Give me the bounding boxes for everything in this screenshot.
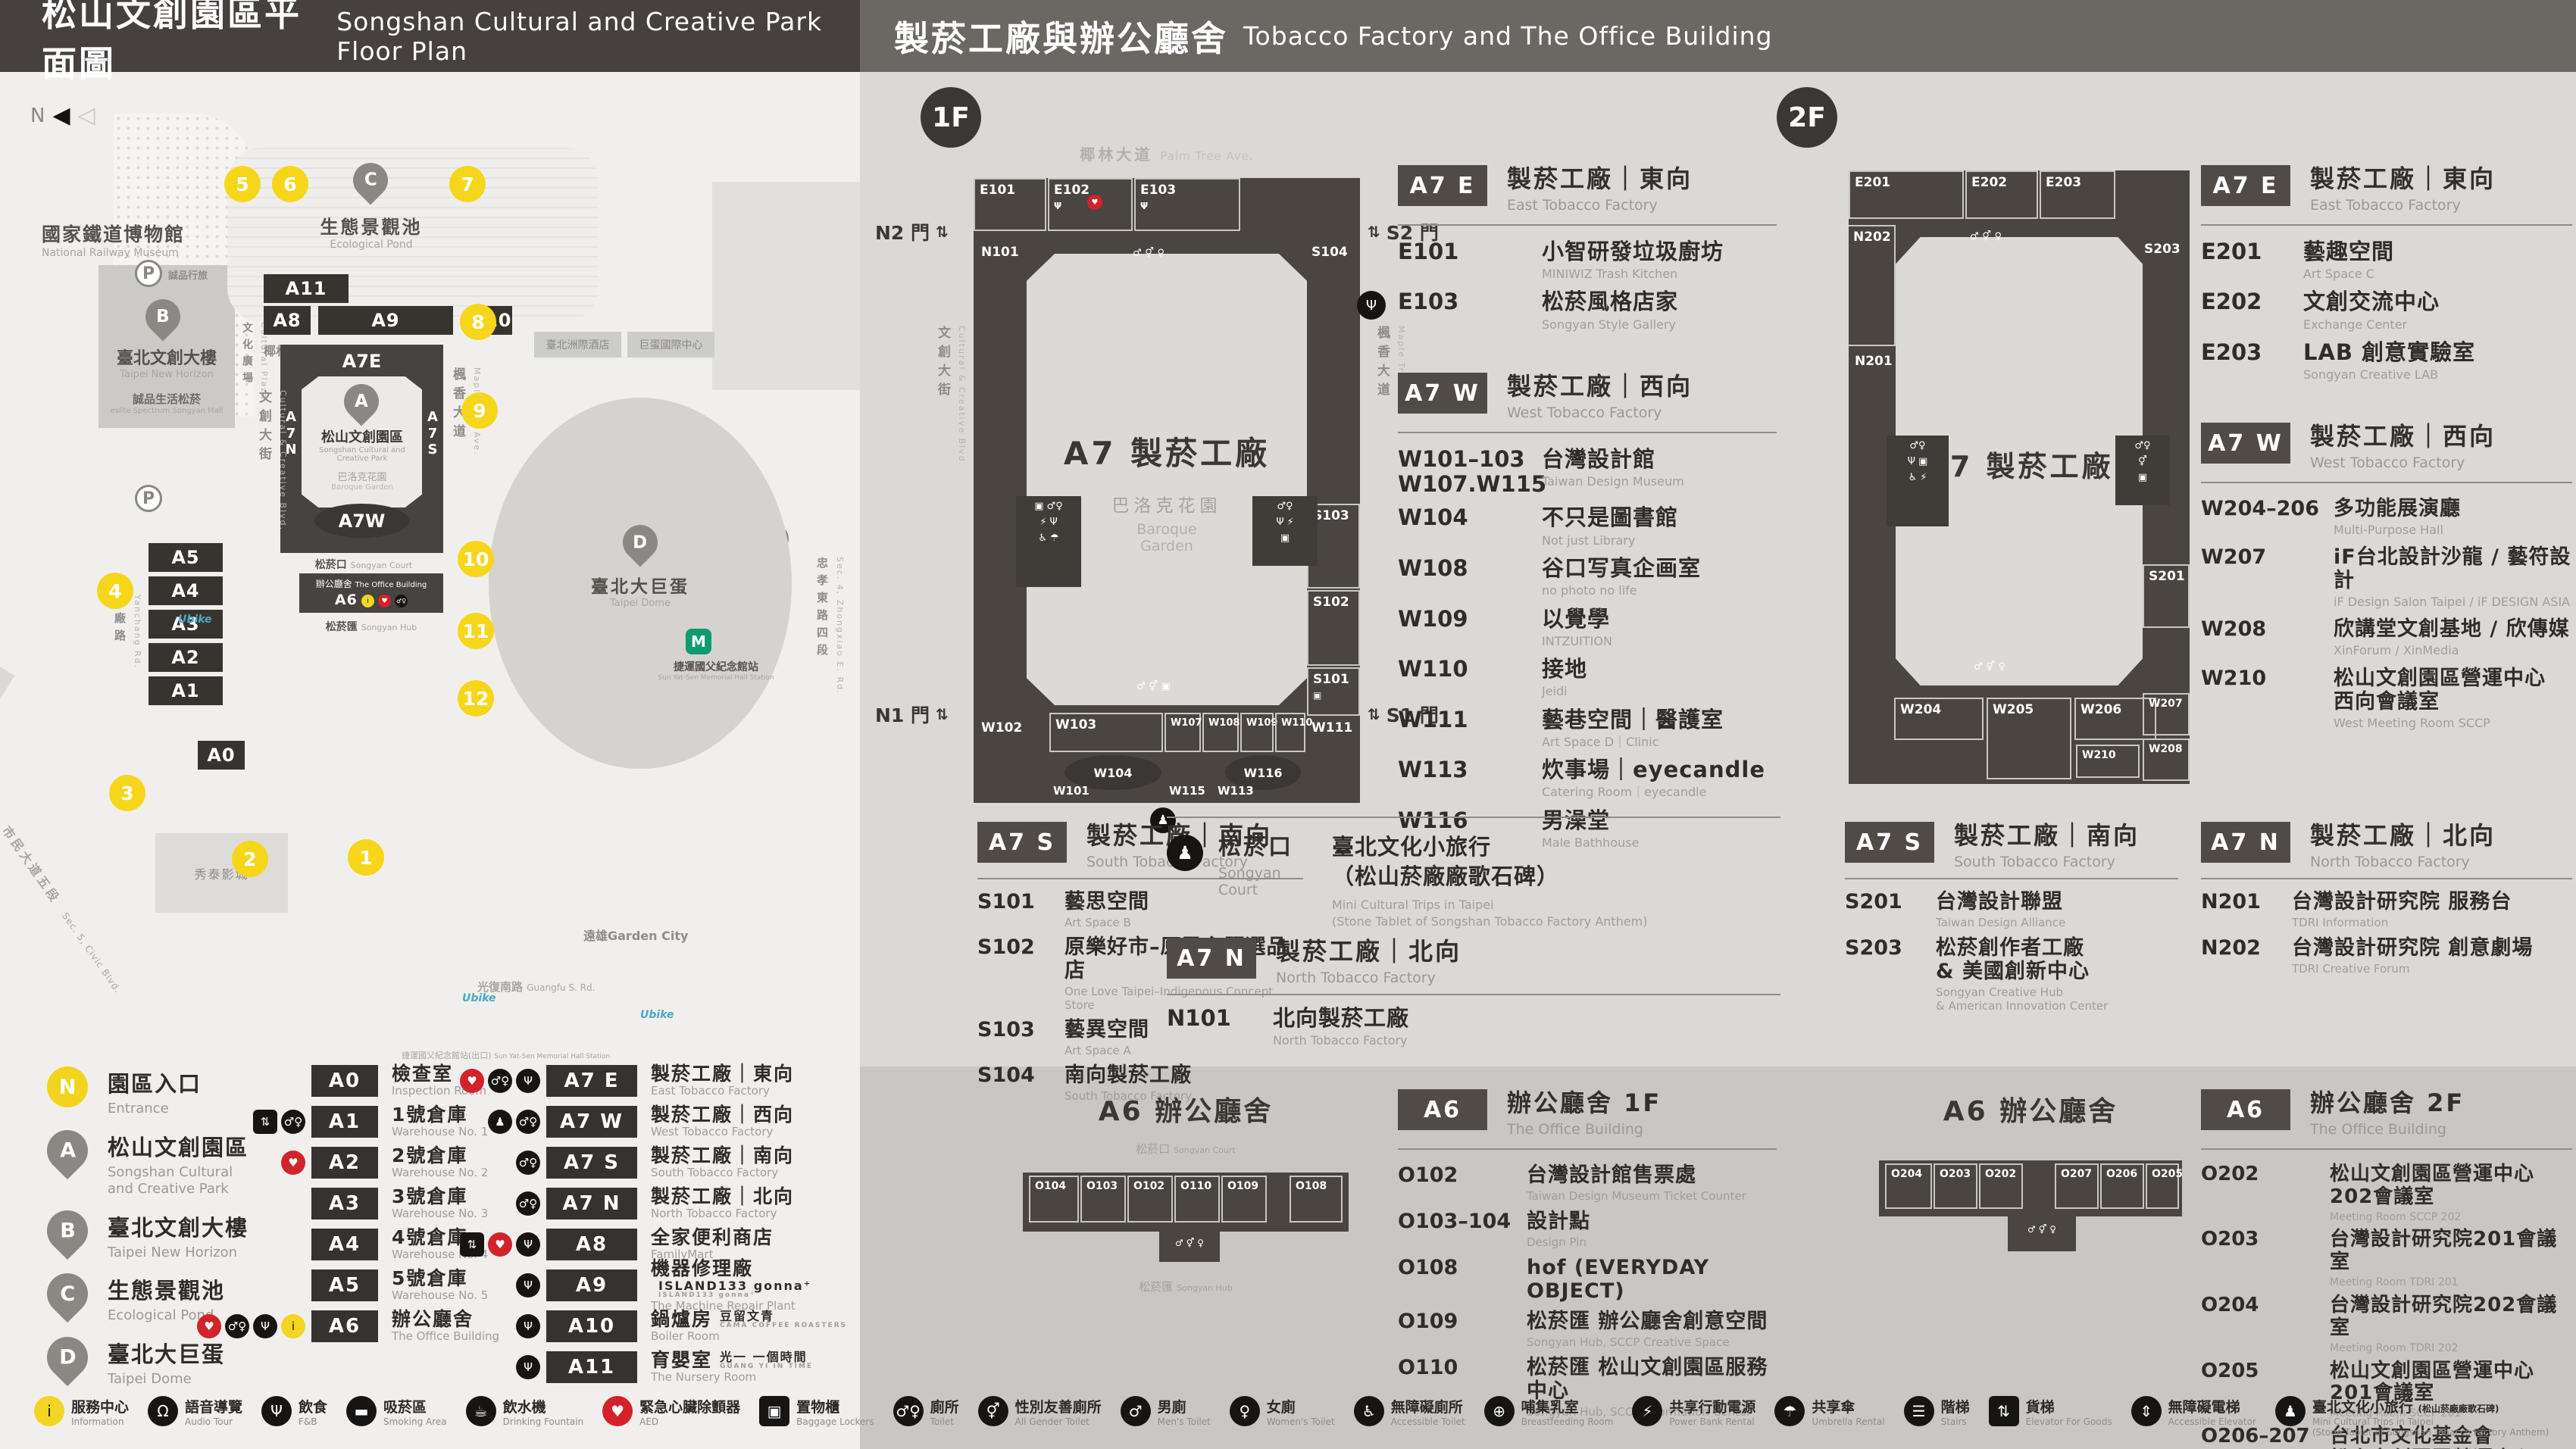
building-code-chip: A1 xyxy=(311,1106,378,1138)
building-icons: ♥ xyxy=(216,1151,305,1175)
building-en: Boiler Room xyxy=(651,1331,847,1343)
entry-zh: 欣講堂文創基地 / 欣傳媒 xyxy=(2334,617,2572,641)
amenity-zh: 服務中心 xyxy=(71,1396,129,1416)
building-partner: ISLAND133 gonna⁺ISLAND133 gonna⁺ xyxy=(658,1280,811,1299)
north-arrow2-icon: ◁ xyxy=(78,102,95,129)
entry-code: S103 xyxy=(977,1018,1064,1057)
right-title-zh: 製菸工廠與辦公廳舍 xyxy=(894,11,1228,61)
entry-code: W208 xyxy=(2201,617,2334,657)
cultural-plaza-zh: 文化廣場 xyxy=(239,322,255,401)
aed-dot: ♥ xyxy=(1087,195,1102,210)
room-s102: S102 xyxy=(1307,590,1360,666)
building-icons: ♥♂♀Ψi xyxy=(216,1314,305,1338)
entry-en: Jeidi xyxy=(1542,684,1777,698)
amenity-item: Ψ 飲食 F&B xyxy=(261,1396,327,1427)
entry-en: no photo no life xyxy=(1542,583,1777,598)
poster: 松山文創園區平面圖 Songshan Cultural and Creative… xyxy=(0,0,2576,1449)
entrance-12: 12 xyxy=(458,680,494,717)
room-entry: Ψ E103 松菸風格店家Songyan Style Gallery xyxy=(1398,289,1777,332)
songyan-en2: (Stone Tablet of Songshan Tobacco Factor… xyxy=(1332,914,1648,929)
eslite-hotel-label: 誠品行旅 xyxy=(168,267,208,282)
entry-zh: 南向製菸工廠 xyxy=(1064,1063,1303,1087)
room-entry: O102 台灣設計館售票處Taiwan Design Museum Ticket… xyxy=(1398,1163,1777,1203)
legend-building-row: ⇅♥Ψ A8 全家便利商店 FamilyMart xyxy=(451,1228,860,1261)
map-block-a1: A1 xyxy=(148,676,223,705)
building-icons: ⇅♥Ψ xyxy=(451,1232,540,1257)
entry-en: Meeting Room TDRI 202 xyxy=(2330,1342,2572,1355)
north-arrow-icon: ◀ xyxy=(52,102,70,129)
food-icon: Ψ xyxy=(1357,291,1386,320)
legend-building-row: Ψ A11 育嬰室光一 一個時間GUANG YI IN TIME The Nur… xyxy=(451,1351,860,1384)
amenity-en: F&B xyxy=(299,1416,327,1427)
amenity-en: Accessible Elevator xyxy=(2168,1416,2256,1427)
building-zh: 製菸工廠｜西向 xyxy=(651,1105,802,1125)
map-block-a2: A2 xyxy=(148,643,223,672)
badge-a7e: A7 E xyxy=(1398,165,1487,206)
a7-complex: A7E A7N A7S A 松山文創園區 Songshan Cultural a… xyxy=(280,345,443,553)
amenity-en: Audio Tour xyxy=(185,1416,242,1427)
section-a6-2f: A6 辦公廳舍 2FThe Office Building O202 松山文創園… xyxy=(2201,1089,2572,1449)
entry-zh: 不只是圖書館 xyxy=(1542,505,1777,530)
songyan-court-map: 松菸口 Songyan Court xyxy=(303,557,424,572)
entry-code: S102 xyxy=(977,935,1064,1012)
amenity-item: ♀ 女廁 Women's Toilet xyxy=(1230,1396,1335,1427)
entrance-2: 2 xyxy=(232,841,268,877)
room-entry: W101–103W107.W115 台灣設計館Taiwan Design Mus… xyxy=(1398,447,1777,498)
amenity-zh: 語音導覽 xyxy=(185,1396,242,1416)
civic-blvd-label: 市民大道五段 Sec. 5, Civic Blvd. xyxy=(0,822,128,996)
toilet-icon: ♂♀ xyxy=(395,595,408,607)
building-code-chip: A0 xyxy=(311,1065,378,1097)
map-block-a11: A11 xyxy=(264,274,349,303)
mens-toilet-icon: ♂ xyxy=(1121,1396,1151,1426)
room-w103: W103 xyxy=(1049,713,1163,752)
cultural-blvd-label: 文創大街 Cultural & Creative Blvd. xyxy=(255,390,288,531)
power-bank-icon: ⚡ xyxy=(1632,1396,1662,1426)
info-icon: i xyxy=(281,1314,305,1338)
entry-zh: 台灣設計研究院 服務台 xyxy=(2292,890,2572,913)
toilet-icon: ♂♀ xyxy=(516,1110,540,1134)
title-en: The Office Building xyxy=(2310,1121,2465,1138)
entry-code: W113 xyxy=(1398,757,1542,800)
map-block-a4: A4 xyxy=(148,576,223,605)
entry-zh: iF台北設計沙龍 / 藝符設計 xyxy=(2334,545,2572,592)
entry-code: N202 xyxy=(2201,936,2292,976)
north-label: N xyxy=(30,105,45,127)
building-code-chip: A11 xyxy=(546,1351,637,1383)
point-en: Taipei Dome xyxy=(108,1371,225,1388)
a6-1f-stub: ♂ ⚥ ♀ xyxy=(1159,1232,1220,1262)
building-zh: 育嬰室光一 一個時間GUANG YI IN TIME xyxy=(651,1351,813,1371)
badge-a7w: A7 W xyxy=(1398,373,1487,414)
entrance-1: 1 xyxy=(348,839,384,876)
breastfeeding-icon: ⊕ xyxy=(1484,1396,1515,1426)
amenity-item: ☕ 飲水機 Drinking Fountain xyxy=(466,1396,583,1427)
pin-a-zh: 松山文創園區 xyxy=(294,426,430,446)
pin-d-zh: 臺北大巨蛋 xyxy=(564,572,716,598)
badge-a6: A6 xyxy=(1398,1089,1487,1130)
amenity-item: ⚥ 性別友善廁所 All Gender Toilet xyxy=(978,1396,1102,1427)
amenity-zh: 置物櫃 xyxy=(796,1396,874,1416)
womens-toilet-icon: ♀ xyxy=(1230,1396,1260,1426)
room-s104: S104 xyxy=(1311,245,1348,260)
entrance-3: 3 xyxy=(109,775,145,811)
entry-zh: 多功能展演廳 xyxy=(2334,497,2572,520)
garden-city-label: 遠雄Garden City xyxy=(583,926,688,944)
entry-en: TDRI Information xyxy=(2292,916,2572,929)
amenity-en: Drinking Fountain xyxy=(503,1416,583,1427)
building-zh: 製菸工廠｜東向 xyxy=(651,1064,802,1084)
eslite-mall-zh: 誠品生活松菸 xyxy=(91,391,242,407)
ubike-label: Ubike xyxy=(640,1009,674,1021)
goods-elevator-icon: ⇅ xyxy=(460,1232,484,1257)
title-zh: 製菸工廠｜北向 xyxy=(1276,938,1462,966)
entry-zh2: 西向會議室 xyxy=(2334,690,2572,714)
aed-icon: ♥ xyxy=(460,1069,484,1093)
entry-zh: 台灣設計研究院 創意劇場 xyxy=(2292,936,2572,960)
toilet-icon: ♂♀ xyxy=(893,1396,924,1426)
songyan-hub-label: 松菸匯 Songyan Hub xyxy=(1008,1279,1364,1294)
amenity-en: Information xyxy=(71,1416,129,1427)
amenity-item: Ω 語音導覽 Audio Tour xyxy=(148,1396,242,1427)
entry-code: W109 xyxy=(1398,607,1542,649)
section-1f-a7n: A7 N 製菸工廠｜北向North Tobacco Factory N101 北… xyxy=(1167,938,1780,1056)
road-right-zh: 楓香大道 xyxy=(1373,326,1392,414)
gate-n1: N1 門⇅ xyxy=(875,701,949,728)
entry-en: Meeting Room SCCP 202 xyxy=(2330,1211,2572,1224)
title-en: West Tobacco Factory xyxy=(1507,404,1693,421)
title-zh: 製菸工廠｜北向 xyxy=(2310,822,2496,850)
entry-code: N201 xyxy=(2201,890,2292,929)
entry-zh: 台灣設計館 xyxy=(1542,447,1777,472)
room-w110: W110 xyxy=(1275,713,1305,752)
room-entry: E202 文創交流中心Exchange Center xyxy=(2201,289,2572,332)
room-entry: W208 欣講堂文創基地 / 欣傳媒XinForum / XinMedia xyxy=(2201,617,2572,657)
building-code-chip: A2 xyxy=(311,1147,378,1179)
room-entry: E203 LAB 創意實驗室Songyan Creative LAB xyxy=(2201,340,2572,383)
ubike-label: Ubike xyxy=(462,992,496,1004)
entry-code: W210 xyxy=(2201,667,2334,730)
title-en: West Tobacco Factory xyxy=(2310,454,2496,471)
aed-icon: ♥ xyxy=(281,1151,305,1175)
room-w108: W108 xyxy=(1202,713,1239,752)
songyan-en1: Mini Cultural Trips in Taipei xyxy=(1332,898,1648,912)
building-icons: ♥♂♀Ψ xyxy=(451,1069,540,1093)
entry-code: S203 xyxy=(1845,936,1936,1013)
entry-code: W104 xyxy=(1398,505,1542,548)
entry-en: Songyan Hub, SCCP Creative Space xyxy=(1527,1335,1777,1349)
amenity-en: Power Bank Rental xyxy=(1669,1416,1755,1427)
entry-zh: 松菸創作者工廠 xyxy=(1936,936,2178,960)
entry-code: S201 xyxy=(1845,890,1936,929)
amenity-en: Baggage Lockers xyxy=(796,1416,874,1427)
badge-a6: A6 xyxy=(2201,1089,2290,1130)
food-icon: Ψ xyxy=(261,1396,292,1426)
toilet-icon: ♂♀ xyxy=(225,1314,249,1338)
section-1f-songyan: ♟ 松菸口 Songyan Court 臺北文化小旅行 （松山菸廠廠歌石碑） M… xyxy=(1167,817,1780,929)
pin-d-en: Taipei Dome xyxy=(564,598,716,609)
point-marker: C xyxy=(39,1265,96,1323)
cultural-blvd-en: Cultural & Creative Blvd. xyxy=(278,390,288,531)
building-icons: Ψ xyxy=(451,1355,540,1379)
title-en: East Tobacco Factory xyxy=(2310,197,2496,214)
room-o102: O102 xyxy=(1127,1176,1173,1223)
entry-en: Design Pin xyxy=(1527,1235,1777,1249)
entry-en: iF Design Salon Taipei / iF DESIGN ASIA xyxy=(2334,595,2572,609)
road-left-en: Cultural & Creative Blvd. xyxy=(957,326,967,467)
badge-a7n: A7 N xyxy=(2201,822,2290,863)
entry-zh: 台灣設計聯盟 xyxy=(1936,890,2178,913)
civic-blvd-zh: 市民大道五段 xyxy=(0,823,64,906)
parking-icon: P xyxy=(135,260,162,287)
room-entry: O203 台灣設計研究院201會議室Meeting Room TDRI 201 xyxy=(2201,1229,2572,1289)
entry-en: North Tobacco Factory xyxy=(1273,1033,1780,1048)
amenity-bottom-center: ♂ ⚥ ♀ xyxy=(1974,661,2005,673)
entry-code: O202 xyxy=(2201,1163,2330,1224)
section-a6-1f: A6 辦公廳舍 1FThe Office Building O102 台灣設計館… xyxy=(1398,1089,1777,1426)
room-entry: O103–104 設計點Design Pin xyxy=(1398,1210,1777,1249)
gate-n2: N2 門⇅ xyxy=(875,218,949,245)
entry-zh: 台灣設計研究院202會議室 xyxy=(2330,1294,2572,1340)
right-header: 製菸工廠與辦公廳舍 Tobacco Factory and The Office… xyxy=(860,0,2576,72)
room-entry: N101 北向製菸工廠North Tobacco Factory xyxy=(1167,1006,1780,1048)
room-entry: W104 不只是圖書館Not just Library xyxy=(1398,505,1777,548)
amenity-item: ⇅ 貨梯 Elevator For Goods xyxy=(1989,1396,2112,1427)
entry-en: Meeting Room TDRI 201 xyxy=(2330,1276,2572,1289)
room-e103: E103Ψ xyxy=(1134,178,1240,231)
road-left-zh: 文創大街 xyxy=(933,326,952,467)
room-o204: O204 xyxy=(1885,1163,1932,1209)
room-o203: O203 xyxy=(1934,1163,1977,1209)
building-icons: Ψ xyxy=(451,1314,540,1338)
room-entry: O202 松山文創園區營運中心202會議室Meeting Room SCCP 2… xyxy=(2201,1163,2572,1224)
entry-code: W204–206 xyxy=(2201,497,2334,537)
building-icons: ♟♂♀ xyxy=(451,1110,540,1134)
entry-zh: 接地 xyxy=(1542,657,1777,682)
songyan-en: Songyan Court xyxy=(1218,865,1317,898)
entrance-10: 10 xyxy=(458,541,494,577)
songyan-line1: 臺北文化小旅行 xyxy=(1332,835,1648,860)
amenity-item: ☂ 共享傘 Umbrella Rental xyxy=(1774,1396,1884,1427)
amenity-en: Accessible Toilet xyxy=(1391,1416,1465,1427)
amenity-zh: 階梯 xyxy=(1941,1396,1970,1416)
amenity-item: ♿ 無障礙廁所 Accessible Toilet xyxy=(1354,1396,1465,1427)
entry-zh: 藝巷空間｜醫護室 xyxy=(1542,707,1777,732)
badge-a7w: A7 W xyxy=(2201,423,2290,464)
room-entry: E201 藝趣空間Art Space C xyxy=(2201,239,2572,282)
room-w113: W113 xyxy=(1218,784,1254,798)
dome-intl-center-block: 巨蛋國際中心 xyxy=(627,332,714,358)
railway-museum-zh: 國家鐵道博物館 xyxy=(42,220,185,247)
entry-zh: 台灣設計館售票處 xyxy=(1527,1163,1777,1187)
metro-icon: M xyxy=(686,629,711,654)
building-zh: 製菸工廠｜北向 xyxy=(651,1187,802,1207)
all-gender-toilet-icon: ⚥ xyxy=(978,1396,1008,1426)
room-entry: S201 台灣設計聯盟Taiwan Design Alliance xyxy=(1845,890,2178,929)
entry-code: O204 xyxy=(2201,1294,2330,1355)
room-w109: W109 xyxy=(1240,713,1274,752)
amenity-bottom-center: ♂ ⚥ ▣ xyxy=(1136,681,1171,692)
entry-en: Art Space D｜Clinic xyxy=(1542,735,1777,749)
entry-en: Songyan Creative Hub xyxy=(1936,985,2178,999)
amenity-legend: i 服務中心 Information Ω 語音導覽 Audio Tour Ψ 飲… xyxy=(34,1396,2549,1438)
room-e101: E101 xyxy=(974,178,1046,231)
building-en: East Tobacco Factory xyxy=(651,1085,802,1098)
amenity-zh: 男廁 xyxy=(1158,1396,1211,1416)
goods-elevator-icon: ⇅ xyxy=(1989,1396,2019,1426)
entry-zh: LAB 創意實驗室 xyxy=(2303,340,2572,365)
room-w101: W101 xyxy=(1053,784,1089,798)
entry-zh: 台灣設計研究院201會議室 xyxy=(2330,1229,2572,1274)
title-zh: 辦公廳舍 1F xyxy=(1507,1089,1662,1117)
office-building-zh: 辦公廳舍 The Office Building xyxy=(299,577,443,590)
section-1f-a7w: A7 W 製菸工廠｜西向West Tobacco Factory W101–10… xyxy=(1398,373,1777,858)
room-o104: O104 xyxy=(1029,1176,1079,1223)
a6-1f-title: A6 辦公廳舍 xyxy=(1008,1089,1364,1129)
room-w205: W205 xyxy=(1987,698,2071,779)
room-entry: W108 谷口写真企画室no photo no life xyxy=(1398,556,1777,598)
building-zh: 機器修理廠ISLAND133 gonna⁺ISLAND133 gonna⁺ xyxy=(651,1259,860,1299)
entry-code: W207 xyxy=(2201,545,2334,609)
amenity-item: ▣ 置物櫃 Baggage Lockers xyxy=(759,1396,874,1427)
room-entry: W210 松山文創園區營運中心西向會議室West Meeting Room SC… xyxy=(2201,667,2572,730)
info-icon: i xyxy=(361,595,374,607)
food-icon: Ψ xyxy=(516,1232,540,1257)
north-indicator: N ◀◁ xyxy=(30,102,95,129)
entry-code: W110 xyxy=(1398,657,1542,699)
baroque-en: Baroque Garden xyxy=(294,483,430,492)
cultural-blvd-1f: 文創大街 Cultural & Creative Blvd. xyxy=(933,326,967,467)
palm-ave-1f: 椰林大道Palm Tree Ave. xyxy=(974,142,1360,164)
amenity-item: ☰ 階梯 Stairs xyxy=(1904,1396,1970,1427)
section-1f-a7e: A7 E 製菸工廠｜東向East Tobacco Factory E101 小智… xyxy=(1398,165,1777,340)
pin-b-label: 臺北文創大樓 Taipei New Horizon 誠品生活松菸 eslite … xyxy=(91,345,242,415)
zhongxiao-rd-label: 忠孝東路四段 Sec. 4, Zhongxiao E. Rd. xyxy=(814,557,845,695)
title-zh: 製菸工廠｜東向 xyxy=(2310,165,2496,193)
building-zh: 鍋爐房豆留文青CAMA COFFEE ROASTERS xyxy=(651,1310,847,1330)
entry-zh: 松菸匯 辦公廳舍創意空間 xyxy=(1527,1310,1777,1333)
point-zh: 臺北大巨蛋 xyxy=(108,1337,225,1369)
entry-en: Catering Room｜eyecandle xyxy=(1542,785,1777,799)
entry-code: O108 xyxy=(1398,1256,1527,1303)
entry-zh: 北向製菸工廠 xyxy=(1273,1006,1780,1031)
a6-building: 辦公廳舍 The Office Building A6 i ♥ ♂♀ xyxy=(299,573,443,613)
pin-b-zh: 臺北文創大樓 xyxy=(91,345,242,369)
building-code-chip: A7 S xyxy=(546,1147,637,1179)
floor-badge-1f: 1F xyxy=(921,87,981,148)
room-e201: E201 xyxy=(1849,170,1964,219)
amenity-en: AED xyxy=(639,1416,740,1427)
building-icons: Ψ xyxy=(451,1273,540,1298)
entry-en: Songyan Style Gallery xyxy=(1542,317,1777,332)
room-o109: O109 xyxy=(1221,1176,1267,1223)
entry-zh: 松山文創園區營運中心202會議室 xyxy=(2330,1163,2572,1209)
toilet-icon: ♂♀ xyxy=(488,1069,512,1093)
right-title-en: Tobacco Factory and The Office Building xyxy=(1243,21,1773,51)
a7-floorplan-2f: E201 E202 E203 N202 N201 S203 S201 W204 … xyxy=(1849,170,2190,784)
amenity-zh: 無障礙廁所 xyxy=(1391,1396,1465,1416)
cinema-block: 秀泰影城 xyxy=(155,833,288,913)
amenity-en: Women's Toilet xyxy=(1267,1416,1335,1427)
legend-building-row: ♟♂♀ A7 W 製菸工廠｜西向 West Tobacco Factory xyxy=(451,1105,860,1138)
yanchang-rd-en: Yanchang Rd. xyxy=(133,595,142,669)
entry-en: Exchange Center xyxy=(2303,317,2572,332)
room-n101: N101 xyxy=(981,245,1019,260)
room-entry: W113 炊事場｜eyecandleCatering Room｜eyecandl… xyxy=(1398,757,1777,800)
point-zh: 生態景觀池 xyxy=(108,1273,225,1305)
food-icon: Ψ xyxy=(516,1314,540,1338)
room-w207: W207 xyxy=(2143,693,2190,735)
baroque-zh: 巴洛克花園 xyxy=(294,469,430,483)
amenity-en: Toilet xyxy=(930,1416,959,1427)
room-entry: N202 台灣設計研究院 創意劇場TDRI Creative Forum xyxy=(2201,936,2572,976)
entry-en: Art Space C xyxy=(2303,267,2572,281)
floor-badge-2f: 2F xyxy=(1777,87,1837,148)
accessible-elevator-icon: ⇕ xyxy=(2131,1396,2162,1426)
room-entry: W111 藝巷空間｜醫護室Art Space D｜Clinic xyxy=(1398,707,1777,750)
aed-icon: ♥ xyxy=(602,1396,633,1426)
building-en: West Tobacco Factory xyxy=(651,1126,802,1138)
pin-a-en1: Songshan Cultural and xyxy=(294,446,430,454)
pin-b-en: Taipei New Horizon xyxy=(91,369,242,380)
entrance-7: 7 xyxy=(449,166,486,202)
amenity-item: ⇕ 無障礙電梯 Accessible Elevator xyxy=(2131,1396,2256,1427)
metro-label: 捷運國父紀念館站 Sun Yat-Sen Memorial Hall Stati… xyxy=(633,659,799,682)
section-2f-a7e: A7 E 製菸工廠｜東向East Tobacco Factory E201 藝趣… xyxy=(2201,165,2572,390)
amenity-zh: 飲水機 xyxy=(503,1396,583,1416)
amenity-en: Breastfeeding Room xyxy=(1521,1416,1614,1427)
room-entry: E101 小智研發垃圾廚坊MINIWIZ Trash Kitchen xyxy=(1398,239,1777,282)
lockers-icon: ▣ xyxy=(759,1396,789,1426)
room-s201: S201 xyxy=(2143,564,2190,628)
room-entry: O204 台灣設計研究院202會議室Meeting Room TDRI 202 xyxy=(2201,1294,2572,1355)
amenity-zh: 吸菸區 xyxy=(383,1396,447,1416)
title-zh: 製菸工廠｜南向 xyxy=(1954,822,2140,850)
entry-code: S101 xyxy=(977,890,1064,929)
entry-code: W111 xyxy=(1398,707,1542,750)
drinking-fountain-icon: ☕ xyxy=(466,1396,496,1426)
amenity-cluster-east: ♂♀ Ψ⚡ ▣ xyxy=(1252,496,1318,566)
point-marker: N xyxy=(47,1066,88,1107)
amenity-top-center: ♂ ⚥ ♀ xyxy=(1133,248,1165,259)
eslite-mall-en: eslite Spectrum Songyan Mall xyxy=(91,407,242,415)
entry-code: O109 xyxy=(1398,1310,1527,1349)
room-s203: S203 xyxy=(2144,242,2181,257)
amenity-en: Elevator For Goods xyxy=(2026,1416,2112,1427)
badge-a7s: A7 S xyxy=(977,822,1067,863)
room-e202: E202 xyxy=(1965,170,2038,219)
legend-building-row: Ψ A9 機器修理廠ISLAND133 gonna⁺ISLAND133 gonn… xyxy=(451,1269,860,1302)
pin-d-label: 臺北大巨蛋 Taipei Dome xyxy=(564,572,716,609)
amenity-en: Umbrella Rental xyxy=(1812,1416,1884,1427)
amenity-en: Stairs xyxy=(1941,1416,1970,1427)
railway-museum-label: 國家鐵道博物館 National Railway Museum xyxy=(42,220,185,259)
songyan-zh: 松菸口 xyxy=(1218,835,1317,861)
entry-en: Taiwan Design Museum Ticket Counter xyxy=(1527,1189,1777,1203)
entry-en: Multi-Purpose Hall xyxy=(2334,523,2572,537)
map-block-a7w: A7W xyxy=(314,504,409,538)
amenity-item: ▬ 吸菸區 Smoking Area xyxy=(346,1396,447,1427)
room-o207: O207 xyxy=(2055,1163,2099,1209)
left-title-en: Songshan Cultural and Creative Park Floo… xyxy=(336,7,860,66)
room-s101: S101 ▣ xyxy=(1307,667,1360,716)
building-code-chip: A4 xyxy=(311,1229,378,1260)
map-block-a9: A9 xyxy=(318,306,453,335)
room-w111: W111 xyxy=(1311,720,1352,735)
ubike-label: Ubike xyxy=(178,614,212,626)
parking-icon: P xyxy=(135,485,162,512)
building-icons: ♂♀ xyxy=(451,1191,540,1216)
